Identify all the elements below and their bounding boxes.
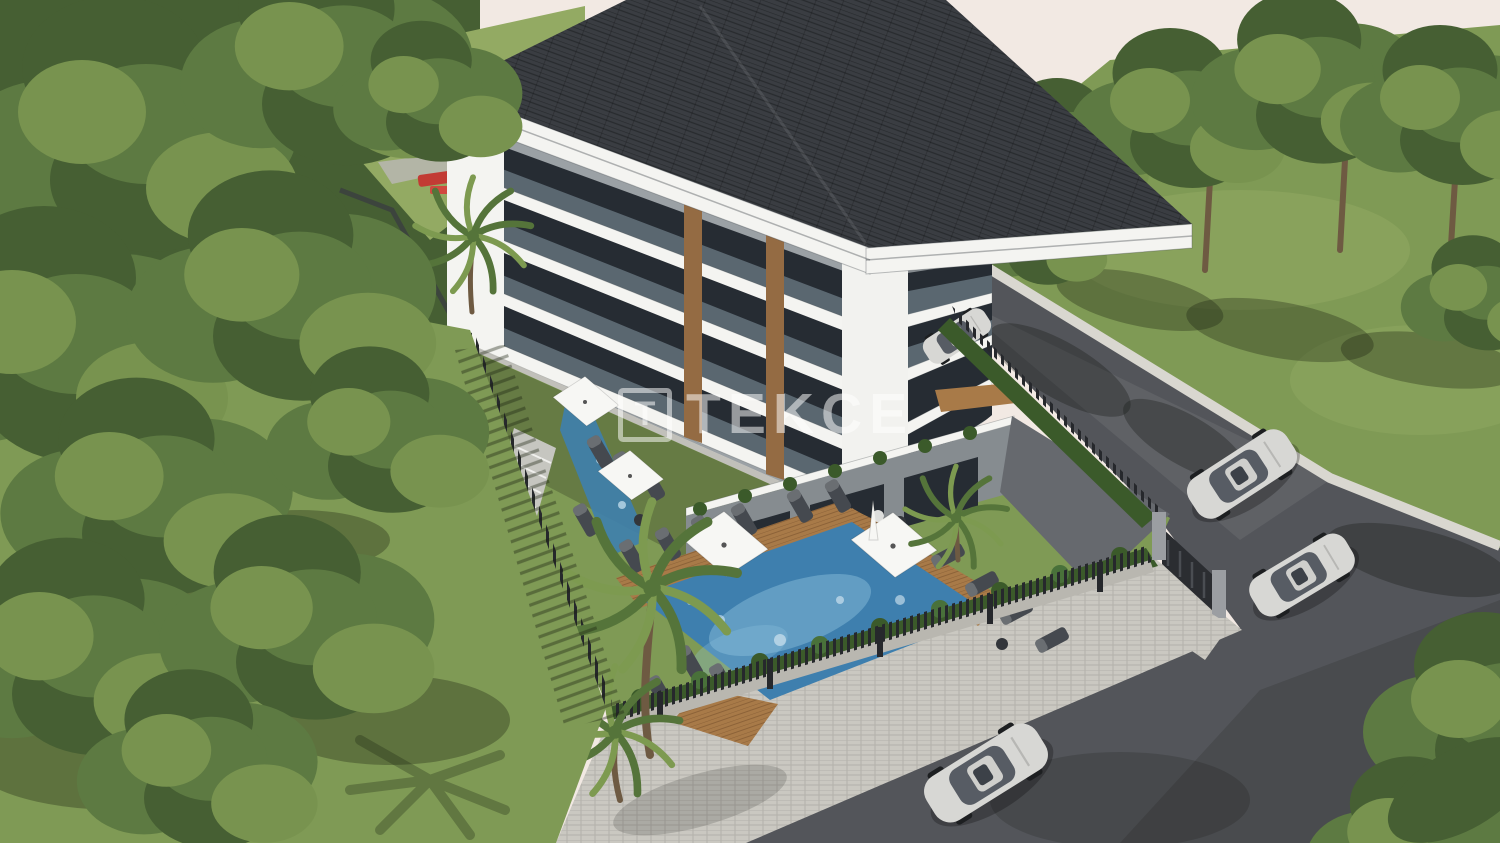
- watermark: T TEKCE: [618, 386, 914, 443]
- architectural-render: T TEKCE: [0, 0, 1500, 843]
- tekce-logo: T: [618, 388, 672, 442]
- tekce-logo-letter: T: [635, 395, 656, 434]
- tekce-wordmark: TEKCE: [686, 386, 914, 443]
